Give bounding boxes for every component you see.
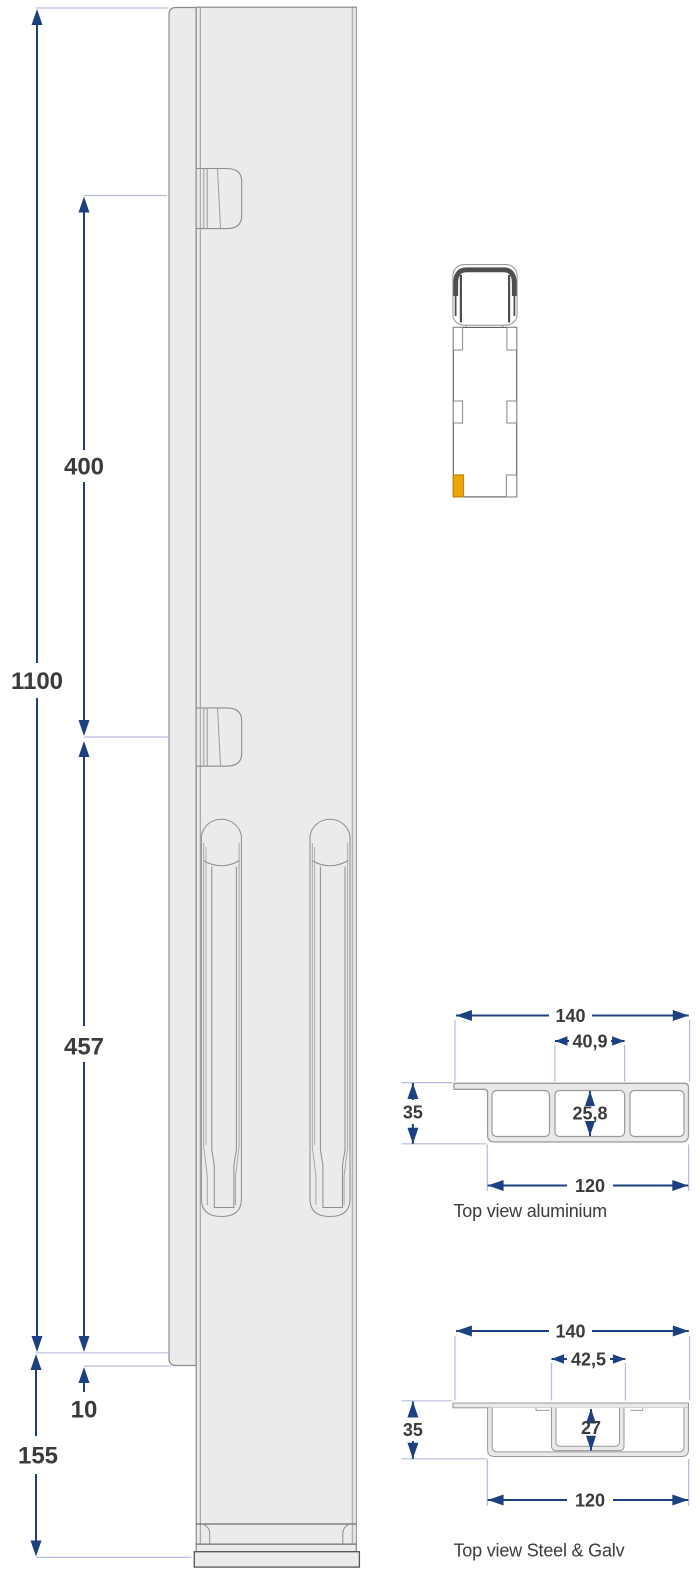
svg-text:140: 140 [555, 1322, 585, 1342]
svg-text:457: 457 [64, 1034, 104, 1061]
svg-text:155: 155 [18, 1443, 58, 1470]
svg-text:35: 35 [403, 1103, 423, 1123]
svg-text:1100: 1100 [11, 668, 63, 695]
svg-text:35: 35 [403, 1420, 423, 1440]
svg-text:120: 120 [575, 1176, 605, 1196]
svg-text:Top view Steel & Galv: Top view Steel & Galv [454, 1541, 625, 1561]
svg-text:42,5: 42,5 [571, 1350, 606, 1370]
svg-text:Top view aluminium: Top view aluminium [454, 1201, 607, 1221]
svg-text:25,8: 25,8 [572, 1104, 607, 1124]
svg-text:10: 10 [71, 1397, 98, 1424]
svg-text:140: 140 [555, 1006, 585, 1026]
svg-text:400: 400 [64, 454, 104, 481]
svg-text:27: 27 [581, 1418, 601, 1438]
svg-text:40,9: 40,9 [572, 1032, 607, 1052]
svg-text:120: 120 [575, 1491, 605, 1511]
